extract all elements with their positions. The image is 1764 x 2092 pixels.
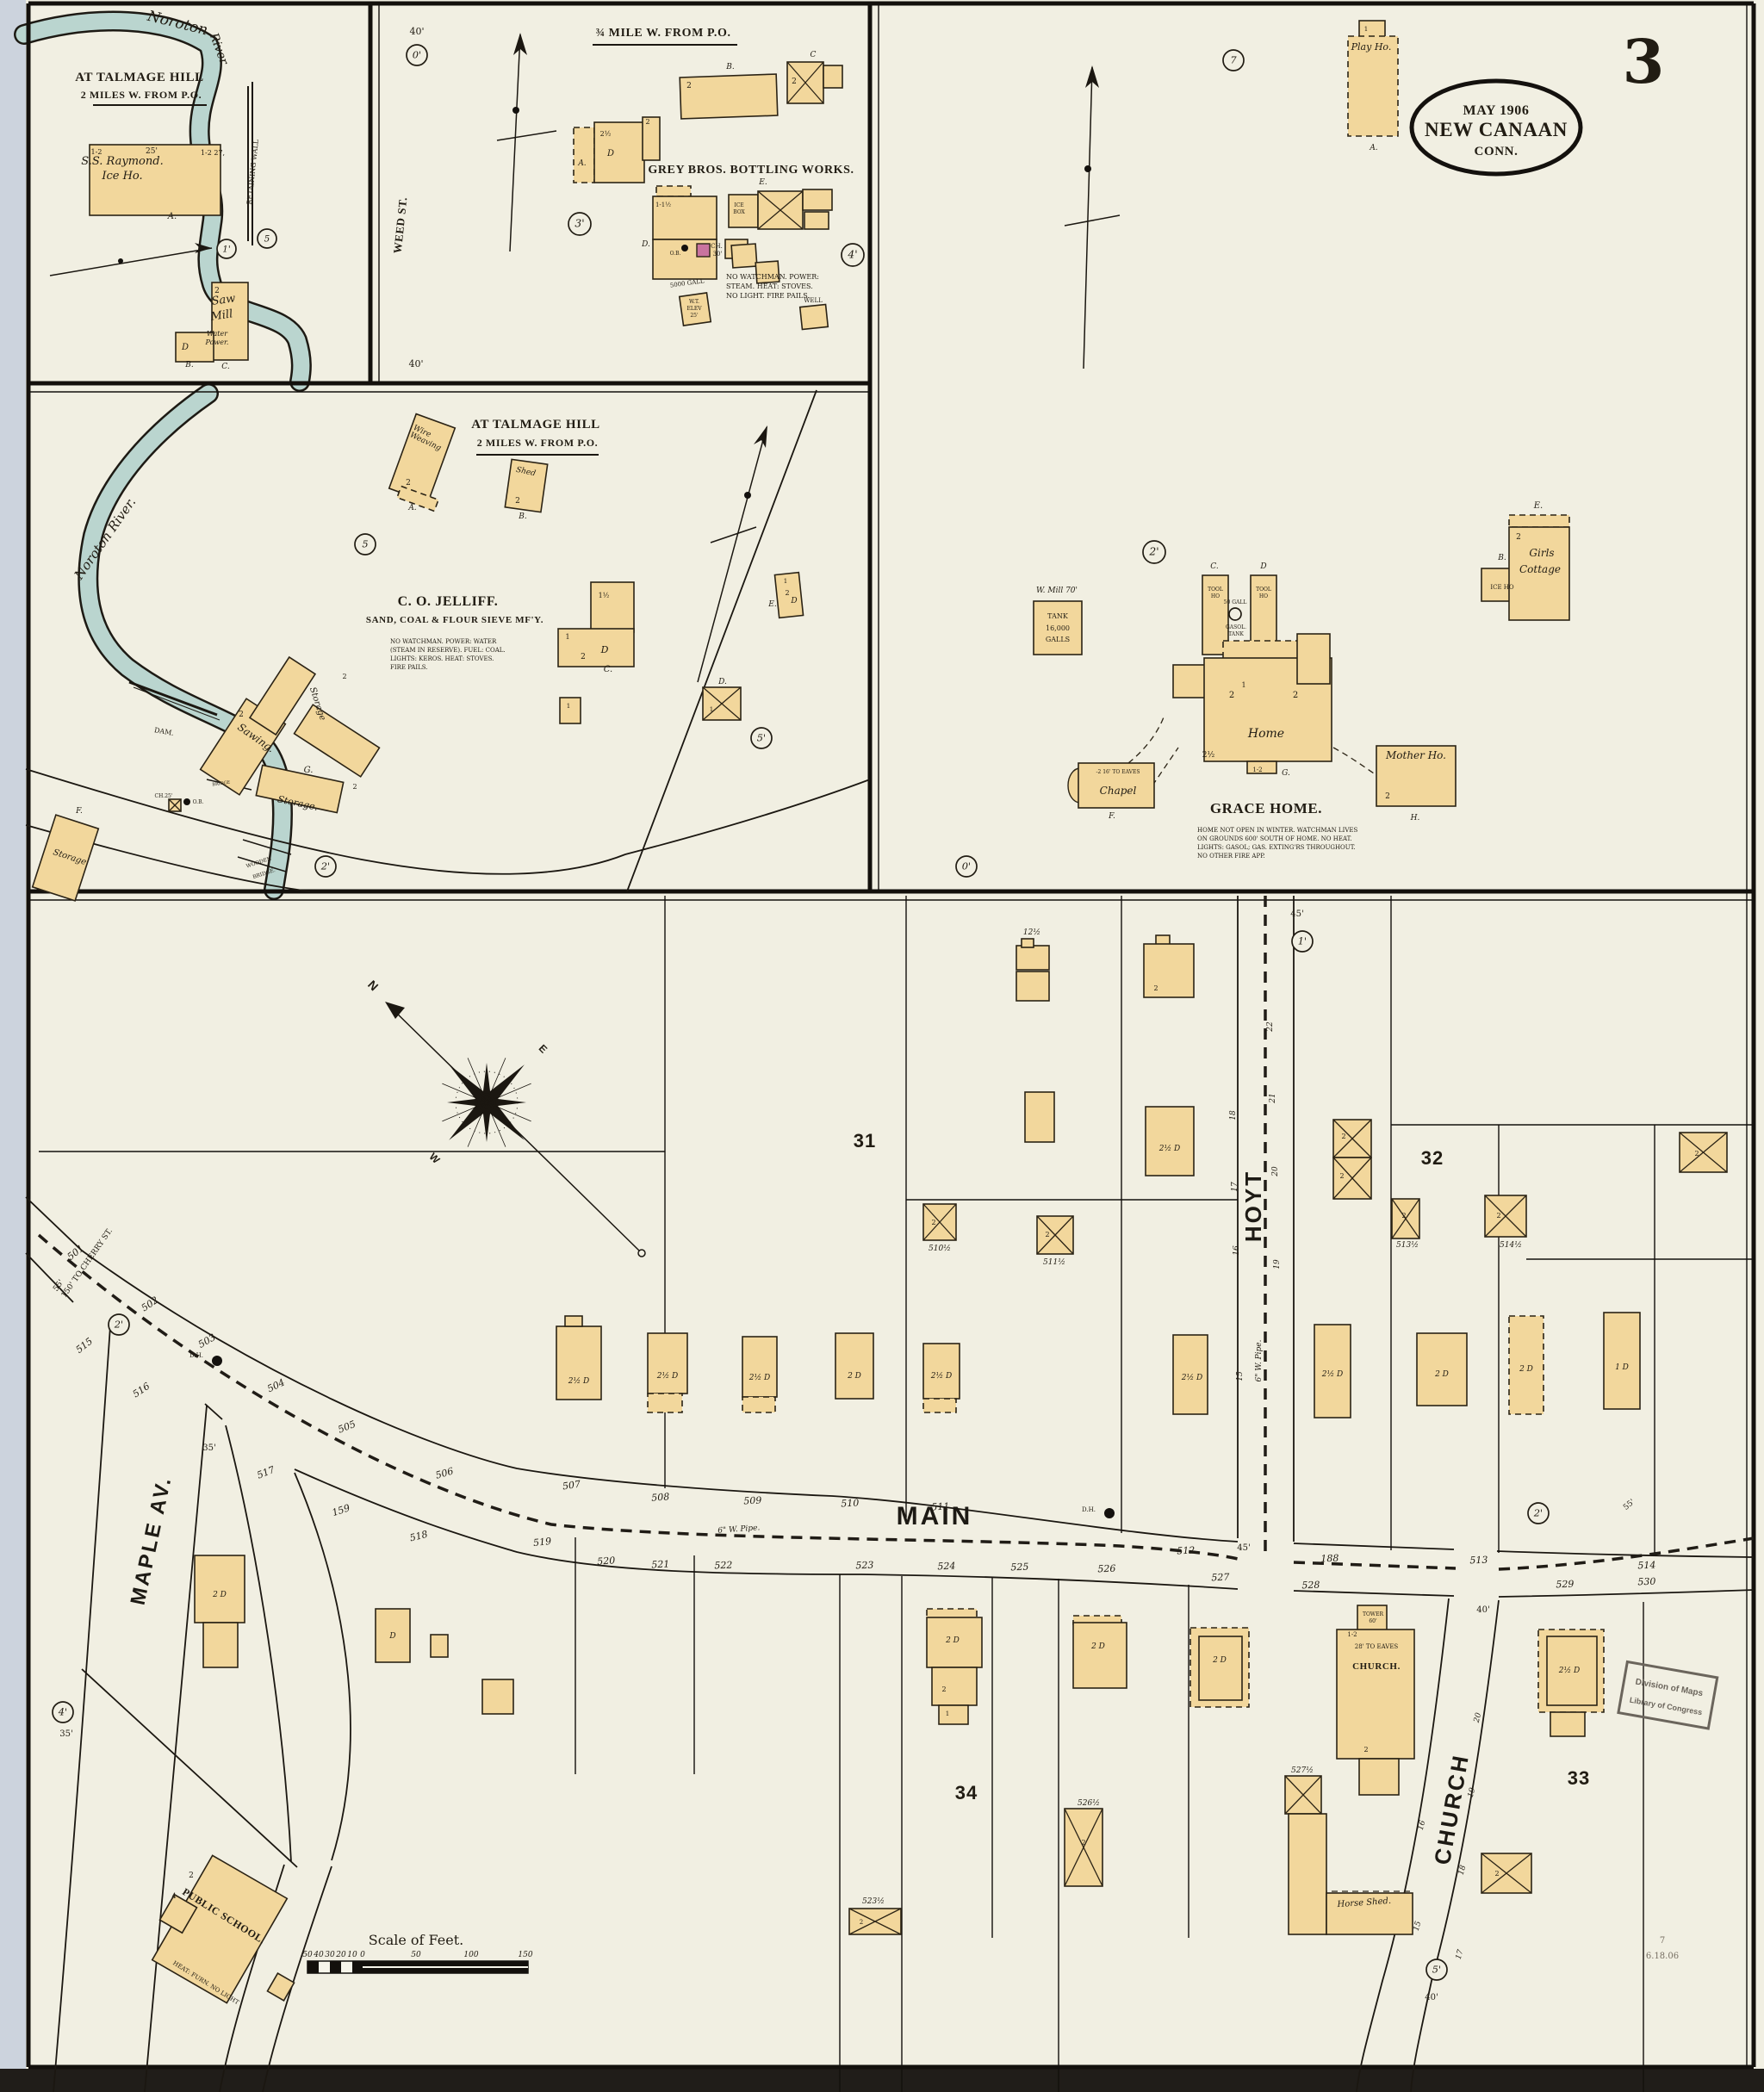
dwelling-marker: 2½ D — [568, 1376, 590, 1386]
rating-circle: 5 — [355, 534, 376, 555]
map-label: A. — [407, 504, 416, 512]
map-label: 1 — [565, 633, 569, 641]
grace-home-note: NO OTHER FIRE APP. — [1197, 853, 1265, 860]
svg-text:2': 2' — [1533, 1507, 1543, 1519]
sanborn-map-sheet: Scale of Feet. 5040302010050100150 Divis… — [0, 0, 1764, 2092]
state-name: CONN. — [1475, 145, 1519, 158]
date-note: 7 — [1660, 1936, 1665, 1946]
building — [758, 191, 803, 229]
building — [203, 1623, 238, 1667]
jelliff-note: LIGHTS: KEROS. HEAT: STOVES. — [390, 655, 494, 662]
building — [1025, 1092, 1054, 1142]
marker-dot — [744, 492, 751, 499]
building — [591, 582, 634, 632]
map-label: G. — [304, 766, 314, 775]
svg-text:0': 0' — [413, 49, 421, 61]
map-label: 2 — [189, 1872, 194, 1880]
map-label: D.H. — [189, 1352, 203, 1359]
building — [1680, 1133, 1727, 1172]
grey-bros-note: STEAM. HEAT: STOVES. — [726, 282, 813, 290]
map-label: 2 — [581, 653, 586, 661]
map-label: ICE HO — [1490, 584, 1514, 591]
lot-number: 22 — [1266, 1021, 1275, 1033]
building — [1297, 634, 1330, 684]
building — [1485, 1195, 1526, 1237]
building — [1289, 1814, 1326, 1934]
dwelling-marker: 2 D — [945, 1636, 960, 1645]
map-label: 30' — [713, 251, 723, 258]
map-label: D — [600, 644, 609, 655]
grey-bros-note: NO LIGHT. FIRE PAILS. — [726, 292, 810, 300]
map-canvas: Scale of Feet. 5040302010050100150 Divis… — [0, 0, 1764, 2092]
map-label: 2 — [1341, 1133, 1345, 1140]
map-label: D — [1259, 562, 1266, 571]
map-label: B. — [184, 361, 194, 369]
map-label: 2 — [645, 118, 649, 126]
building — [1550, 1712, 1585, 1736]
map-label: 35' — [202, 1443, 215, 1453]
building — [1604, 1313, 1640, 1409]
lot-number: 15 — [1236, 1371, 1245, 1381]
house-number: 522 — [714, 1560, 732, 1572]
building — [1285, 1776, 1321, 1814]
lot-number: 18 — [1229, 1110, 1238, 1120]
building — [1144, 944, 1194, 997]
dwelling-marker: 2 D — [212, 1591, 227, 1599]
rating-circle: 2' — [315, 856, 336, 877]
house-number: 527½ — [1291, 1766, 1314, 1775]
house-number: 520 — [597, 1555, 616, 1567]
building — [1481, 1853, 1531, 1893]
map-label: 2 — [686, 82, 692, 90]
map-label: F. — [75, 807, 83, 816]
map-label: C — [811, 51, 817, 59]
map-label: O.B. — [670, 251, 681, 257]
building — [1037, 1216, 1073, 1254]
map-label: E. — [767, 600, 777, 609]
building — [565, 1316, 582, 1326]
map-label: WELL — [804, 297, 823, 304]
house-number: 529 — [1556, 1579, 1574, 1591]
svg-text:2': 2' — [1148, 546, 1158, 558]
map-label: 1 — [1364, 26, 1368, 33]
map-label: B. — [1497, 554, 1506, 562]
map-label: 25' — [690, 313, 699, 319]
house-number: 527 — [1211, 1572, 1229, 1584]
map-label: 1 — [710, 706, 713, 713]
map-label: 2 — [1494, 1870, 1499, 1878]
map-label: 2 — [1496, 1212, 1500, 1220]
house-number: 526 — [1097, 1563, 1115, 1575]
building — [804, 212, 829, 229]
building — [560, 698, 581, 723]
building — [1146, 1107, 1194, 1176]
svg-text:5': 5' — [757, 732, 766, 744]
map-label: 2 — [931, 1219, 935, 1226]
building — [169, 799, 181, 811]
map-label: D.H. — [1082, 1506, 1096, 1513]
map-label: E. — [758, 178, 767, 187]
svg-text:4': 4' — [58, 1706, 67, 1718]
marker-dot — [118, 258, 123, 264]
map-label: 1-1½ — [655, 202, 671, 208]
map-label: B. — [518, 512, 527, 521]
map-label: HO — [1211, 593, 1220, 599]
windmill-tank: W. Mill 70' — [1036, 587, 1078, 595]
house-number: 188 — [1320, 1553, 1339, 1565]
city-name: NEW CANAAN — [1425, 119, 1568, 140]
map-label: 2 — [1229, 691, 1234, 700]
building — [556, 1326, 601, 1400]
map-label: 2½ — [1202, 750, 1215, 760]
map-label: -2 16' TO EAVES — [1096, 769, 1140, 775]
building — [1022, 939, 1034, 947]
map-label: 1-2 — [91, 148, 102, 156]
grace-home-main: Home — [1247, 727, 1284, 741]
rating-circle: 1' — [217, 239, 236, 258]
house-number: 514½ — [1500, 1240, 1522, 1250]
scale-tick: 40 — [313, 1951, 324, 1959]
dwelling-marker: 2½ D — [1181, 1373, 1203, 1382]
building — [923, 1344, 960, 1399]
map-label: 2 — [1339, 1172, 1344, 1180]
grey-bros-label: GREY BROS. BOTTLING WORKS. — [648, 164, 854, 177]
map-label: ELEV — [686, 306, 702, 312]
map-label: D. — [717, 678, 727, 686]
scale-tick: 20 — [335, 1951, 346, 1959]
building — [823, 65, 842, 88]
marker-dot — [512, 107, 519, 114]
house-number: 525 — [1010, 1561, 1028, 1574]
map-label: 40' — [1425, 1993, 1438, 2002]
map-label: D — [790, 597, 797, 605]
rating-circle: 0' — [407, 45, 427, 65]
rating-circle: 7 — [1223, 50, 1244, 71]
marker-dot — [212, 1356, 222, 1366]
building — [703, 687, 741, 720]
map-label: HO — [1259, 593, 1268, 599]
map-label: A. — [577, 159, 586, 168]
building — [648, 1333, 687, 1394]
svg-text:0': 0' — [962, 860, 971, 872]
svg-text:2': 2' — [320, 860, 330, 872]
building — [923, 1399, 956, 1412]
map-label: O.B. — [193, 799, 204, 805]
map-label: H. — [1410, 814, 1420, 823]
grace-home-title: GRACE HOME. — [1210, 800, 1322, 816]
map-label: A. — [1369, 144, 1377, 152]
house-number: 514 — [1637, 1560, 1655, 1572]
house-number: 530 — [1637, 1576, 1655, 1588]
map-label: ICE — [734, 202, 743, 208]
map-label: 2 — [792, 78, 797, 86]
grace-home-note: ON GROUNDS 600' SOUTH OF HOME. NO HEAT. — [1197, 835, 1352, 842]
building — [1509, 515, 1569, 527]
building — [800, 305, 829, 330]
map-label: C. — [1210, 562, 1219, 571]
scale-tick: 150 — [518, 1951, 532, 1959]
date-note: 6.18.06 — [1646, 1952, 1679, 1961]
scale-tick: 30 — [325, 1951, 335, 1959]
map-label: 4 — [171, 1892, 176, 1900]
inset2-title: ¾ MILE W. FROM P.O. — [595, 27, 730, 40]
dwelling-marker: 2½ D — [930, 1371, 953, 1381]
dwelling-marker: 2½ D — [1321, 1369, 1344, 1379]
marker-dot — [183, 798, 190, 805]
inset1-title: 2 MILES W. FROM P.O. — [81, 89, 202, 101]
block-number: 34 — [955, 1782, 978, 1803]
hoyt-street-label: HOYT — [1240, 1170, 1266, 1242]
dwelling-marker: 2 D — [1434, 1370, 1449, 1379]
house-number: 12½ — [1023, 928, 1040, 937]
play-house: Play Ho. — [1351, 41, 1392, 53]
svg-text:7: 7 — [1230, 54, 1237, 66]
block-number: 33 — [1568, 1767, 1590, 1789]
block-number: 31 — [854, 1130, 876, 1152]
house-number: 528 — [1301, 1580, 1320, 1592]
building — [1065, 1809, 1102, 1886]
map-label: E. — [1533, 501, 1543, 511]
jelliff-note: NO WATCHMAN. POWER: WATER — [390, 638, 497, 645]
map-label: TANK — [1047, 612, 1069, 620]
house-number: 510½ — [929, 1244, 951, 1253]
dwelling-marker: 1 D — [1615, 1363, 1629, 1372]
building — [1417, 1333, 1467, 1406]
marker-dot — [681, 245, 688, 251]
marker-dot — [1104, 1508, 1115, 1518]
lot-number: 21 — [1269, 1093, 1277, 1103]
inset1-title: AT TALMAGE HILL — [75, 71, 204, 84]
map-label: 35' — [59, 1729, 72, 1739]
dwelling-marker: 2 D — [1519, 1365, 1533, 1374]
rating-circle: 4' — [842, 244, 864, 266]
map-label: F. — [1108, 812, 1115, 821]
map-label: W.T. — [689, 299, 699, 305]
map-label: 2 — [1045, 1231, 1049, 1238]
inset3-title: 2 MILES W. FROM P.O. — [477, 437, 599, 449]
svg-text:5: 5 — [362, 538, 368, 550]
map-label: 2 — [785, 589, 789, 597]
building — [923, 1204, 956, 1240]
dwelling-marker: 2½ D — [656, 1371, 679, 1381]
building — [1173, 665, 1208, 698]
jelliff-note: (STEAM IN RESERVE). FUEL: COAL. — [390, 647, 506, 654]
map-label: 2 — [406, 479, 411, 487]
building — [803, 189, 832, 210]
building — [1333, 1120, 1371, 1158]
house-number: 510 — [841, 1497, 860, 1509]
rating-circle: 5' — [751, 728, 772, 748]
rating-circle: 1' — [1292, 931, 1313, 952]
house-number: 509 — [743, 1494, 762, 1506]
svg-text:5': 5' — [1432, 1964, 1441, 1976]
grace-home-note: LIGHTS: GASOL; GAS. EXTING'RS THROUGHOUT… — [1197, 844, 1356, 851]
lot-number: 17 — [1231, 1182, 1239, 1192]
rating-circle: 2' — [109, 1314, 129, 1335]
building — [835, 1333, 873, 1399]
dwelling-marker: 2½ D — [748, 1373, 771, 1382]
map-label: 2 — [941, 1685, 946, 1693]
map-label: 16,000 — [1046, 624, 1070, 632]
map-label: TOOL — [1208, 587, 1223, 593]
map-label: CH. — [711, 243, 723, 250]
map-label: 50 GALL — [1224, 599, 1247, 605]
church-building: CHURCH. — [1352, 1661, 1401, 1672]
scale-tick: 0 — [360, 1951, 365, 1959]
rating-circle: 2' — [1528, 1503, 1549, 1524]
building — [574, 127, 594, 183]
map-label: 2 — [515, 497, 520, 506]
building — [656, 186, 691, 196]
map-label: 1 — [1241, 681, 1245, 689]
map-label: 2 — [1401, 1212, 1406, 1220]
svg-text:4': 4' — [847, 249, 857, 261]
map-label: A. — [167, 212, 177, 221]
house-number: 508 — [651, 1491, 670, 1503]
girls-cottage: Cottage — [1519, 563, 1561, 575]
house-number: 523 — [855, 1560, 873, 1572]
jelliff-title: C. O. JELLIFF. — [398, 594, 499, 609]
house-number: 524 — [937, 1561, 955, 1573]
building — [1359, 21, 1385, 38]
building — [1016, 946, 1049, 970]
building — [431, 1635, 448, 1657]
map-label: Water — [207, 330, 228, 338]
rating-circle: 0' — [956, 856, 977, 877]
map-label: 1-2 — [1252, 767, 1262, 773]
edition-date: MAY 1906 — [1463, 103, 1530, 118]
map-label: D — [181, 343, 189, 352]
church-building: TOWER — [1363, 1611, 1383, 1617]
map-label: CH.25' — [154, 793, 172, 799]
water-pipe-label: 6" W. Pipe. — [1255, 1339, 1264, 1381]
lot-number: 16 — [1233, 1245, 1241, 1256]
marker-dot — [1084, 165, 1091, 172]
lot-number: 20 — [1271, 1166, 1280, 1177]
map-label: BOX — [733, 209, 745, 215]
map-label: 40' — [409, 26, 424, 37]
map-label: 1-2 27, — [201, 149, 225, 157]
map-label: GALLS — [1046, 636, 1070, 643]
svg-text:3': 3' — [575, 218, 584, 230]
inset3-title: AT TALMAGE HILL — [471, 418, 600, 431]
map-label: 60' — [1369, 1618, 1377, 1624]
building — [742, 1337, 777, 1397]
svg-text:1': 1' — [222, 245, 231, 255]
map-label: TANK — [1228, 631, 1244, 637]
map-label: 1 — [946, 1710, 949, 1717]
building — [939, 1705, 968, 1724]
scale-tick: 100 — [463, 1951, 478, 1959]
building — [731, 244, 757, 268]
house-number: 513 — [1469, 1555, 1488, 1567]
map-label: TOOL — [1256, 587, 1271, 593]
rating-circle: 4' — [53, 1702, 73, 1723]
house-number: 513½ — [1396, 1240, 1419, 1250]
building — [1359, 1759, 1399, 1795]
map-label: GASOL. — [1226, 624, 1246, 630]
map-label: C. — [604, 665, 612, 674]
building — [1199, 1636, 1242, 1700]
map-label: 1 — [567, 703, 570, 710]
building — [1016, 972, 1049, 1001]
map-label: 2 — [342, 673, 346, 680]
building — [680, 74, 778, 119]
building — [697, 244, 710, 257]
map-label: C. — [221, 363, 230, 371]
map-label: 40' — [1476, 1605, 1489, 1615]
map-label: 2 — [1516, 533, 1521, 542]
map-label: 1½ — [599, 592, 610, 599]
map-label: B. — [725, 63, 735, 71]
dwelling-marker: 2 D — [1212, 1656, 1227, 1665]
house-number: 512 — [1177, 1544, 1196, 1556]
rating-circle: 2' — [1143, 541, 1165, 563]
map-label: 40' — [408, 358, 423, 369]
jelliff-note: FIRE PAILS. — [390, 664, 428, 671]
girls-cottage: Girls — [1529, 547, 1554, 559]
map-label: 2 — [239, 711, 244, 719]
map-label: 2 — [1385, 792, 1390, 801]
raymond-ice-house: Ice Ho. — [101, 170, 142, 183]
lot-number: 19 — [1273, 1259, 1282, 1269]
map-label: 2 — [1694, 1150, 1699, 1158]
map-label: 2 — [860, 1919, 863, 1926]
map-label: 2 — [1293, 691, 1298, 700]
house-number: 526½ — [1078, 1798, 1100, 1808]
dwelling-marker: D — [388, 1632, 395, 1641]
map-label: 1 — [784, 578, 787, 585]
scale-tick: 50 — [411, 1951, 421, 1959]
map-label: 2 — [1081, 1839, 1085, 1847]
house-number: 511 — [931, 1500, 950, 1512]
rating-circle: 5 — [258, 229, 276, 248]
building — [195, 1555, 245, 1623]
dwelling-marker: 2 D — [847, 1372, 861, 1381]
building — [482, 1679, 513, 1714]
map-label: 28' TO EAVES — [1355, 1643, 1399, 1650]
map-label: Power. — [205, 338, 229, 346]
chapel: Chapel — [1100, 785, 1137, 797]
scale-tick: 50 — [302, 1951, 313, 1959]
house-number: 521 — [651, 1558, 670, 1570]
map-label: D. — [641, 240, 650, 249]
jelliff-title: SAND, COAL & FLOUR SIEVE MF'Y. — [366, 615, 543, 625]
map-label: 2 — [1153, 984, 1158, 992]
page-number: 3 — [1623, 26, 1665, 97]
building — [742, 1397, 775, 1412]
building — [1073, 1623, 1127, 1688]
rating-circle — [1229, 608, 1241, 620]
scan-edge-left — [0, 0, 26, 2092]
svg-text:5: 5 — [264, 234, 270, 245]
map-label: 2 — [214, 287, 220, 295]
map-label: 2½ — [600, 130, 612, 138]
house-number: 523½ — [862, 1896, 885, 1906]
map-label: 2 — [352, 783, 357, 791]
scale-title: Scale of Feet. — [369, 1932, 463, 1948]
dwelling-marker: 2½ D — [1558, 1666, 1581, 1675]
map-label: 2 — [1363, 1746, 1368, 1754]
map-label: 45' — [1290, 909, 1303, 919]
map-label: 1-2 — [1347, 1631, 1357, 1638]
raymond-ice-house: S.S. Raymond. — [81, 155, 163, 168]
grey-bros-note: NO WATCHMAN. POWER: — [726, 273, 819, 281]
mother-house: Mother Ho. — [1385, 749, 1446, 761]
map-label: G. — [1282, 769, 1290, 778]
block-number: 32 — [1421, 1147, 1444, 1169]
svg-text:2': 2' — [114, 1319, 123, 1331]
